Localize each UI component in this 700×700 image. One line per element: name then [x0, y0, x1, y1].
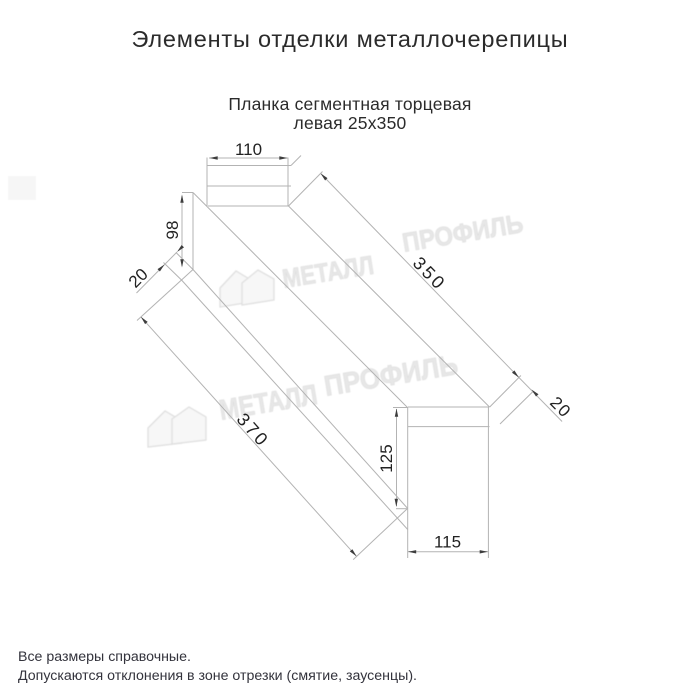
svg-text:ПРОФИЛЬ: ПРОФИЛЬ — [400, 208, 525, 258]
svg-text:125: 125 — [377, 444, 396, 472]
svg-text:20: 20 — [546, 393, 575, 422]
svg-text:МЕТАЛЛ: МЕТАЛЛ — [217, 379, 320, 427]
svg-text:110: 110 — [235, 140, 262, 159]
svg-text:98: 98 — [163, 221, 182, 240]
svg-text:МЕТАЛЛ: МЕТАЛЛ — [280, 250, 376, 294]
svg-text:20: 20 — [125, 265, 152, 292]
svg-text:115: 115 — [434, 533, 461, 552]
svg-text:350: 350 — [409, 253, 451, 295]
